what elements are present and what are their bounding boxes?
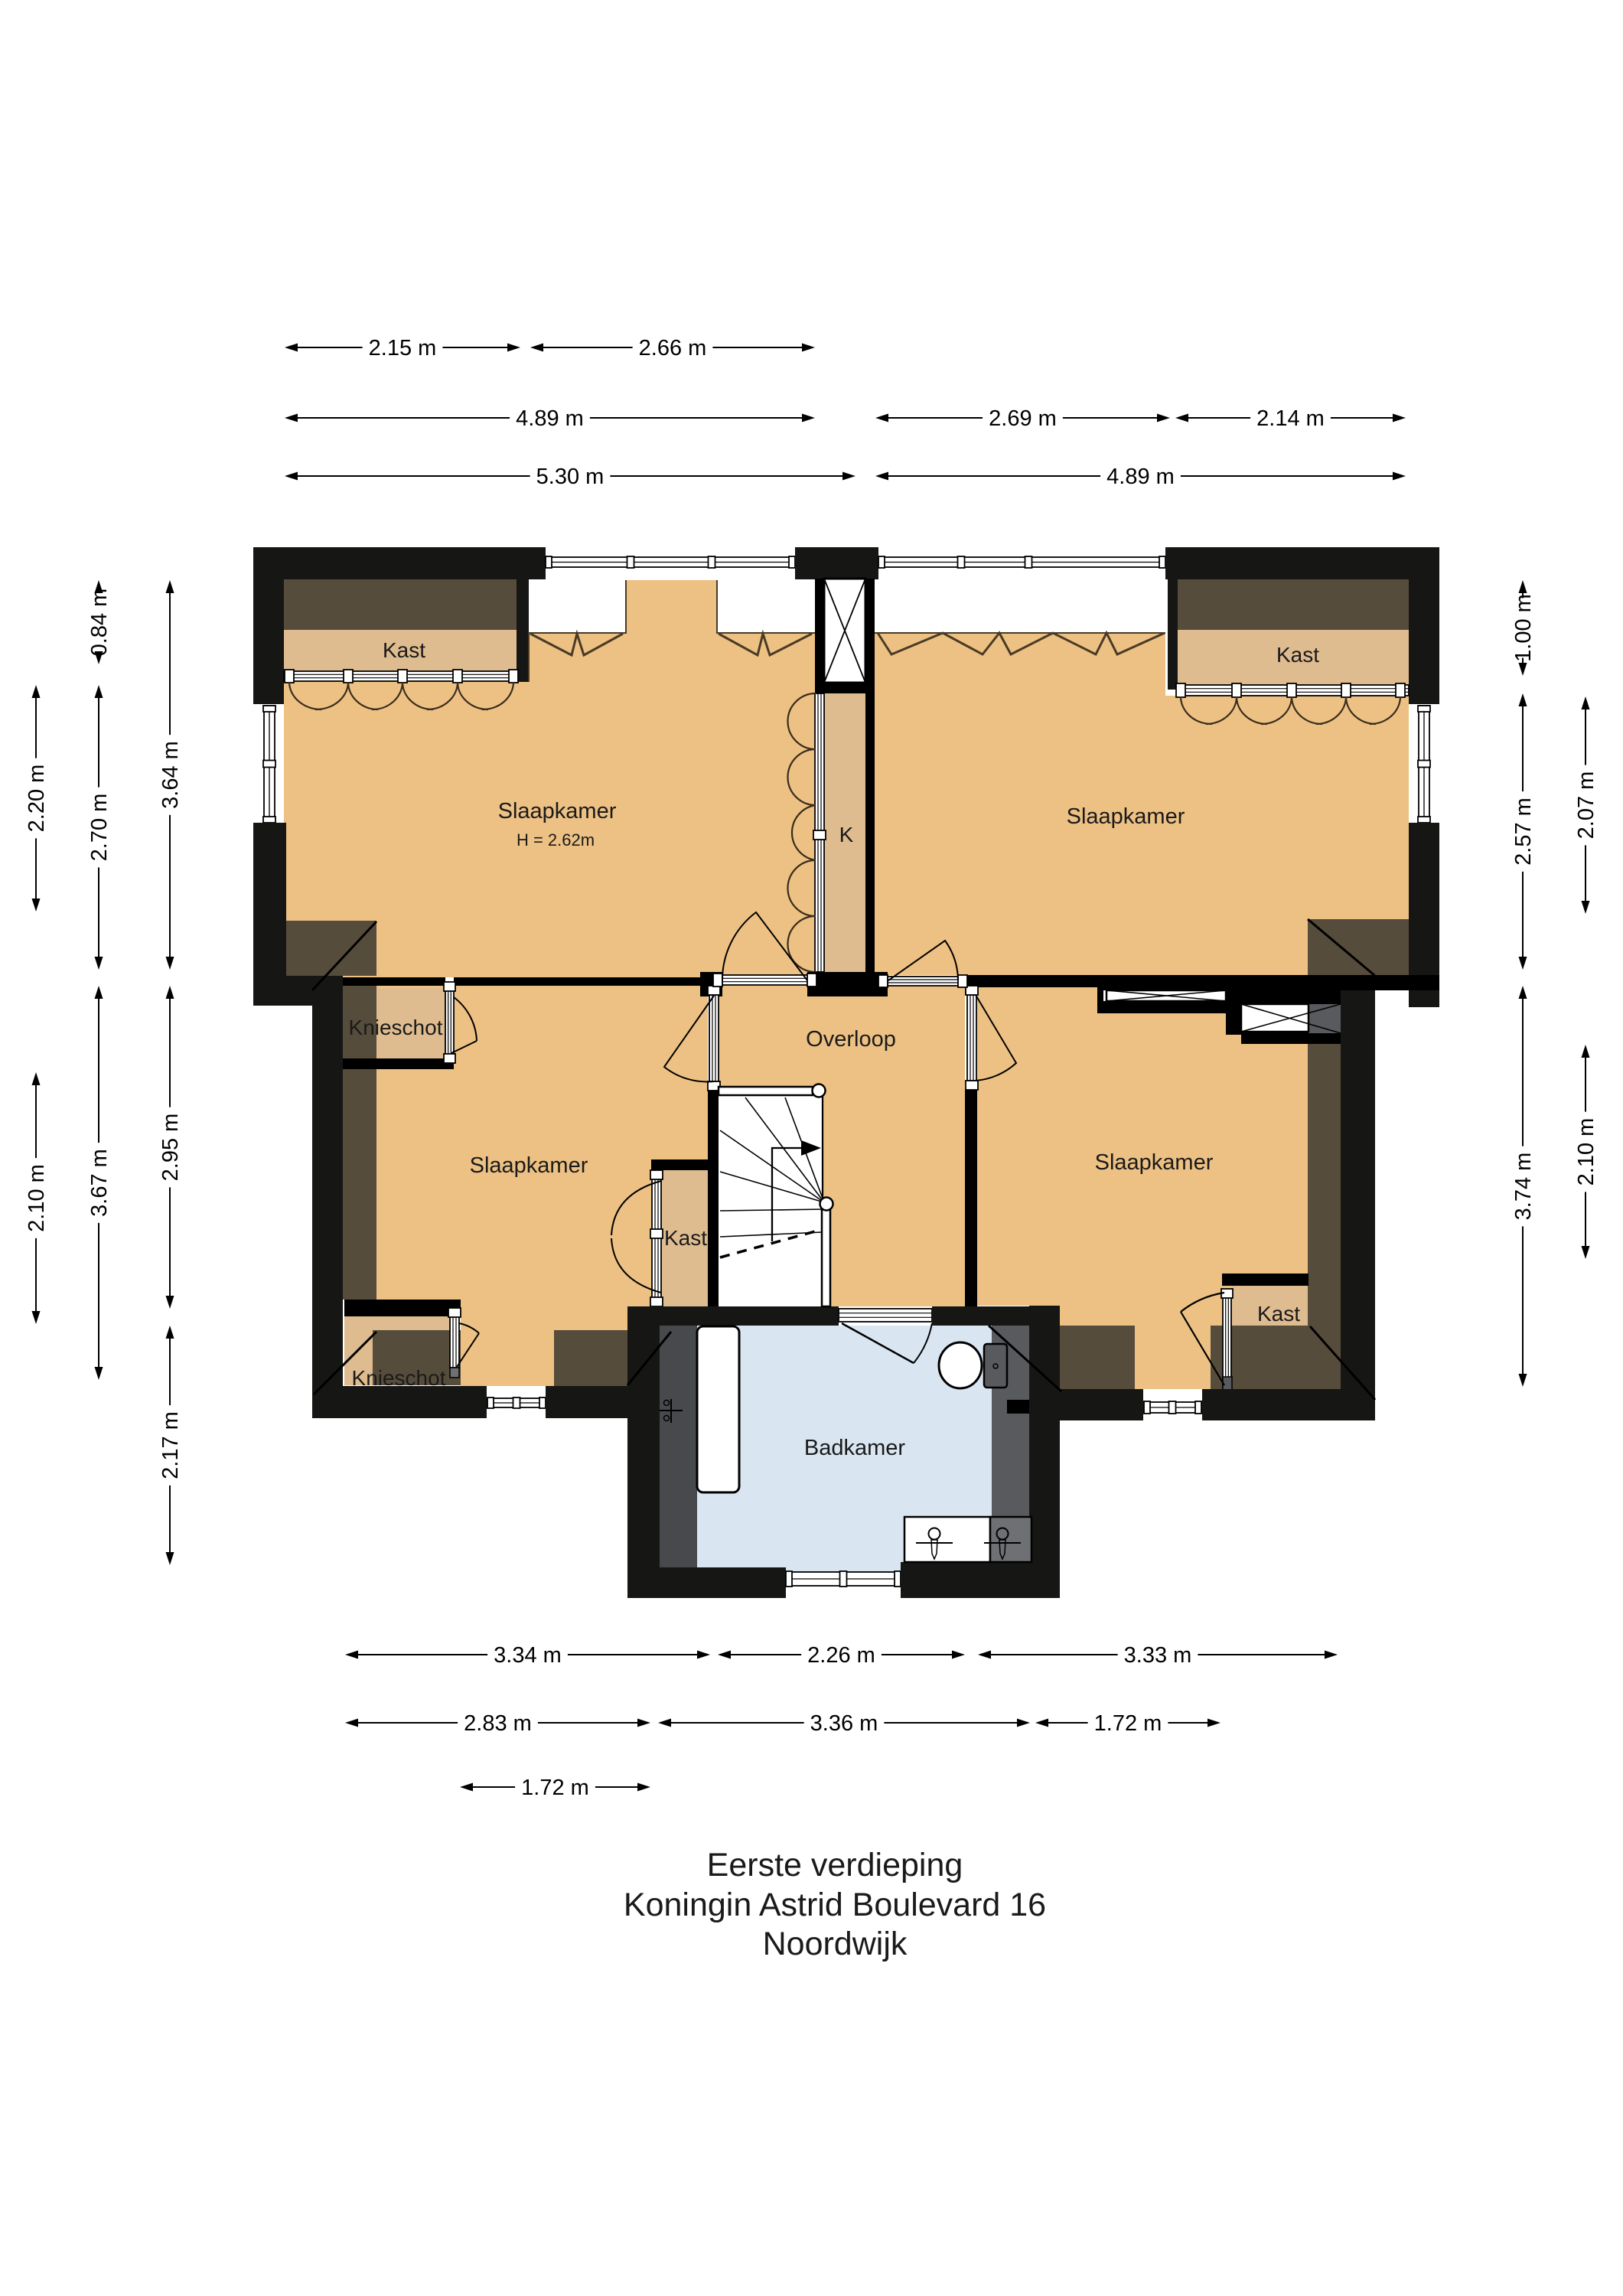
svg-text:Kast: Kast [1276,643,1319,667]
svg-text:3.34 m: 3.34 m [494,1643,562,1668]
svg-text:5.30 m: 5.30 m [536,465,605,489]
svg-text:Noordwijk: Noordwijk [763,1926,908,1962]
svg-text:2.10 m: 2.10 m [24,1164,49,1232]
svg-text:3.64 m: 3.64 m [158,741,183,809]
svg-text:Knieschot: Knieschot [352,1366,446,1390]
svg-text:2.20 m: 2.20 m [24,765,49,833]
svg-text:2.66 m: 2.66 m [639,336,707,360]
svg-text:1.72 m: 1.72 m [1094,1711,1162,1736]
svg-text:3.74 m: 3.74 m [1511,1153,1536,1221]
svg-text:2.10 m: 2.10 m [1574,1118,1599,1186]
svg-text:2.57 m: 2.57 m [1511,797,1536,866]
svg-text:2.69 m: 2.69 m [989,406,1057,431]
svg-text:Kast: Kast [664,1226,707,1250]
svg-text:2.83 m: 2.83 m [464,1711,532,1736]
svg-text:Badkamer: Badkamer [804,1436,906,1460]
svg-text:1.00 m: 1.00 m [1511,594,1536,662]
svg-text:Kast: Kast [383,638,425,662]
svg-text:Kast: Kast [1257,1302,1300,1326]
svg-text:2.14 m: 2.14 m [1256,406,1325,431]
svg-text:Eerste verdieping: Eerste verdieping [707,1847,963,1883]
svg-text:2.26 m: 2.26 m [807,1643,875,1668]
svg-text:Slaapkamer: Slaapkamer [1067,804,1185,829]
svg-text:Overloop: Overloop [806,1027,896,1052]
svg-text:Knieschot: Knieschot [349,1016,443,1039]
svg-text:H = 2.62m: H = 2.62m [517,830,595,850]
svg-text:3.36 m: 3.36 m [810,1711,878,1736]
svg-text:4.89 m: 4.89 m [1106,465,1175,489]
svg-text:Slaapkamer: Slaapkamer [1095,1150,1214,1175]
svg-text:4.89 m: 4.89 m [516,406,584,431]
svg-text:Slaapkamer: Slaapkamer [498,799,617,823]
svg-text:0.84 m: 0.84 m [87,589,112,657]
svg-text:3.67 m: 3.67 m [87,1149,112,1217]
svg-text:1.72 m: 1.72 m [521,1776,589,1800]
svg-text:2.70 m: 2.70 m [87,794,112,862]
svg-text:K: K [839,823,854,846]
svg-text:2.17 m: 2.17 m [158,1411,183,1479]
svg-text:2.07 m: 2.07 m [1574,771,1599,840]
svg-text:Koningin Astrid Boulevard 16: Koningin Astrid Boulevard 16 [624,1887,1046,1923]
svg-text:Slaapkamer: Slaapkamer [470,1153,588,1178]
svg-text:2.95 m: 2.95 m [158,1114,183,1182]
svg-text:3.33 m: 3.33 m [1124,1643,1192,1668]
svg-text:2.15 m: 2.15 m [369,336,437,360]
